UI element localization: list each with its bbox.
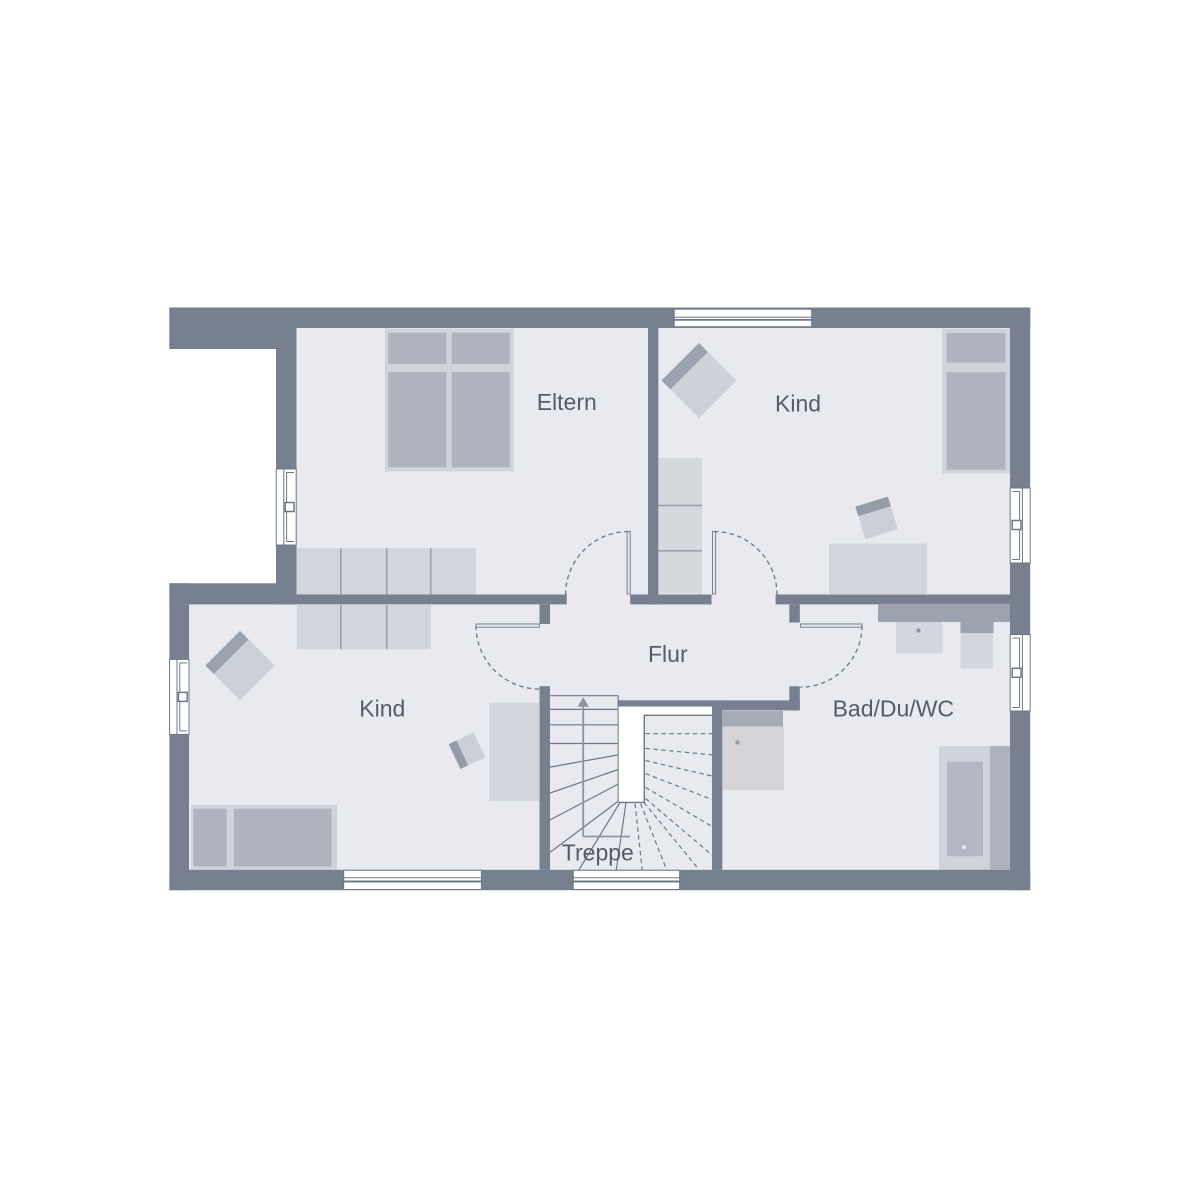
svg-text:Bad/Du/WC: Bad/Du/WC [833, 696, 954, 722]
svg-text:Flur: Flur [648, 641, 688, 667]
svg-text:Eltern: Eltern [537, 389, 597, 415]
svg-text:Treppe: Treppe [562, 839, 634, 865]
svg-text:Kind: Kind [359, 696, 405, 722]
svg-text:Kind: Kind [775, 390, 821, 416]
